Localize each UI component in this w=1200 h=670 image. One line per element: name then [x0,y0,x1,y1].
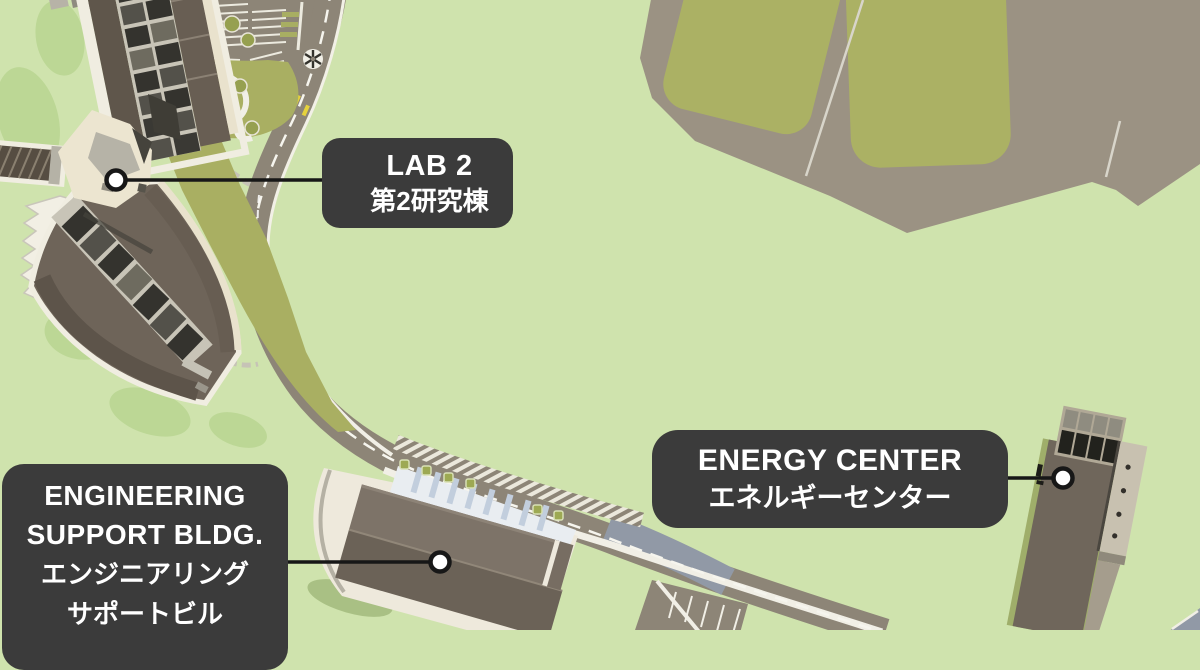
energy-center-label-en: ENERGY CENTER [652,442,1008,480]
engineering-support-label-ja2: サポートビル [2,594,288,634]
lab2-label-en: LAB 2 [346,148,513,184]
planted-stalls [280,12,299,37]
engineering-support-label-en2: SUPPORT BLDG. [2,515,288,554]
lab2-label-ja: 第2研究棟 [346,184,513,218]
energy-center-label: ENERGY CENTER エネルギーセンター [652,430,1008,528]
pier-walkway [0,140,68,187]
engineering-support-label-en1: ENGINEERING [2,476,288,515]
engineering-callout-dot [431,553,450,572]
lab2-callout-dot [107,171,126,190]
field-2 [844,0,1012,169]
engineering-support-label-ja1: エンジニアリング [2,554,288,594]
energy-callout-dot [1054,469,1073,488]
engineering-support-label: ENGINEERING SUPPORT BLDG. エンジニアリング サポートビ… [2,464,288,670]
energy-center-label-ja: エネルギーセンター [652,480,1008,516]
campus-map: LAB 2 第2研究棟 ENERGY CENTER エネルギーセンター ENGI… [0,0,1200,630]
lab2-label: LAB 2 第2研究棟 [322,138,513,228]
tree-icon [303,49,323,69]
